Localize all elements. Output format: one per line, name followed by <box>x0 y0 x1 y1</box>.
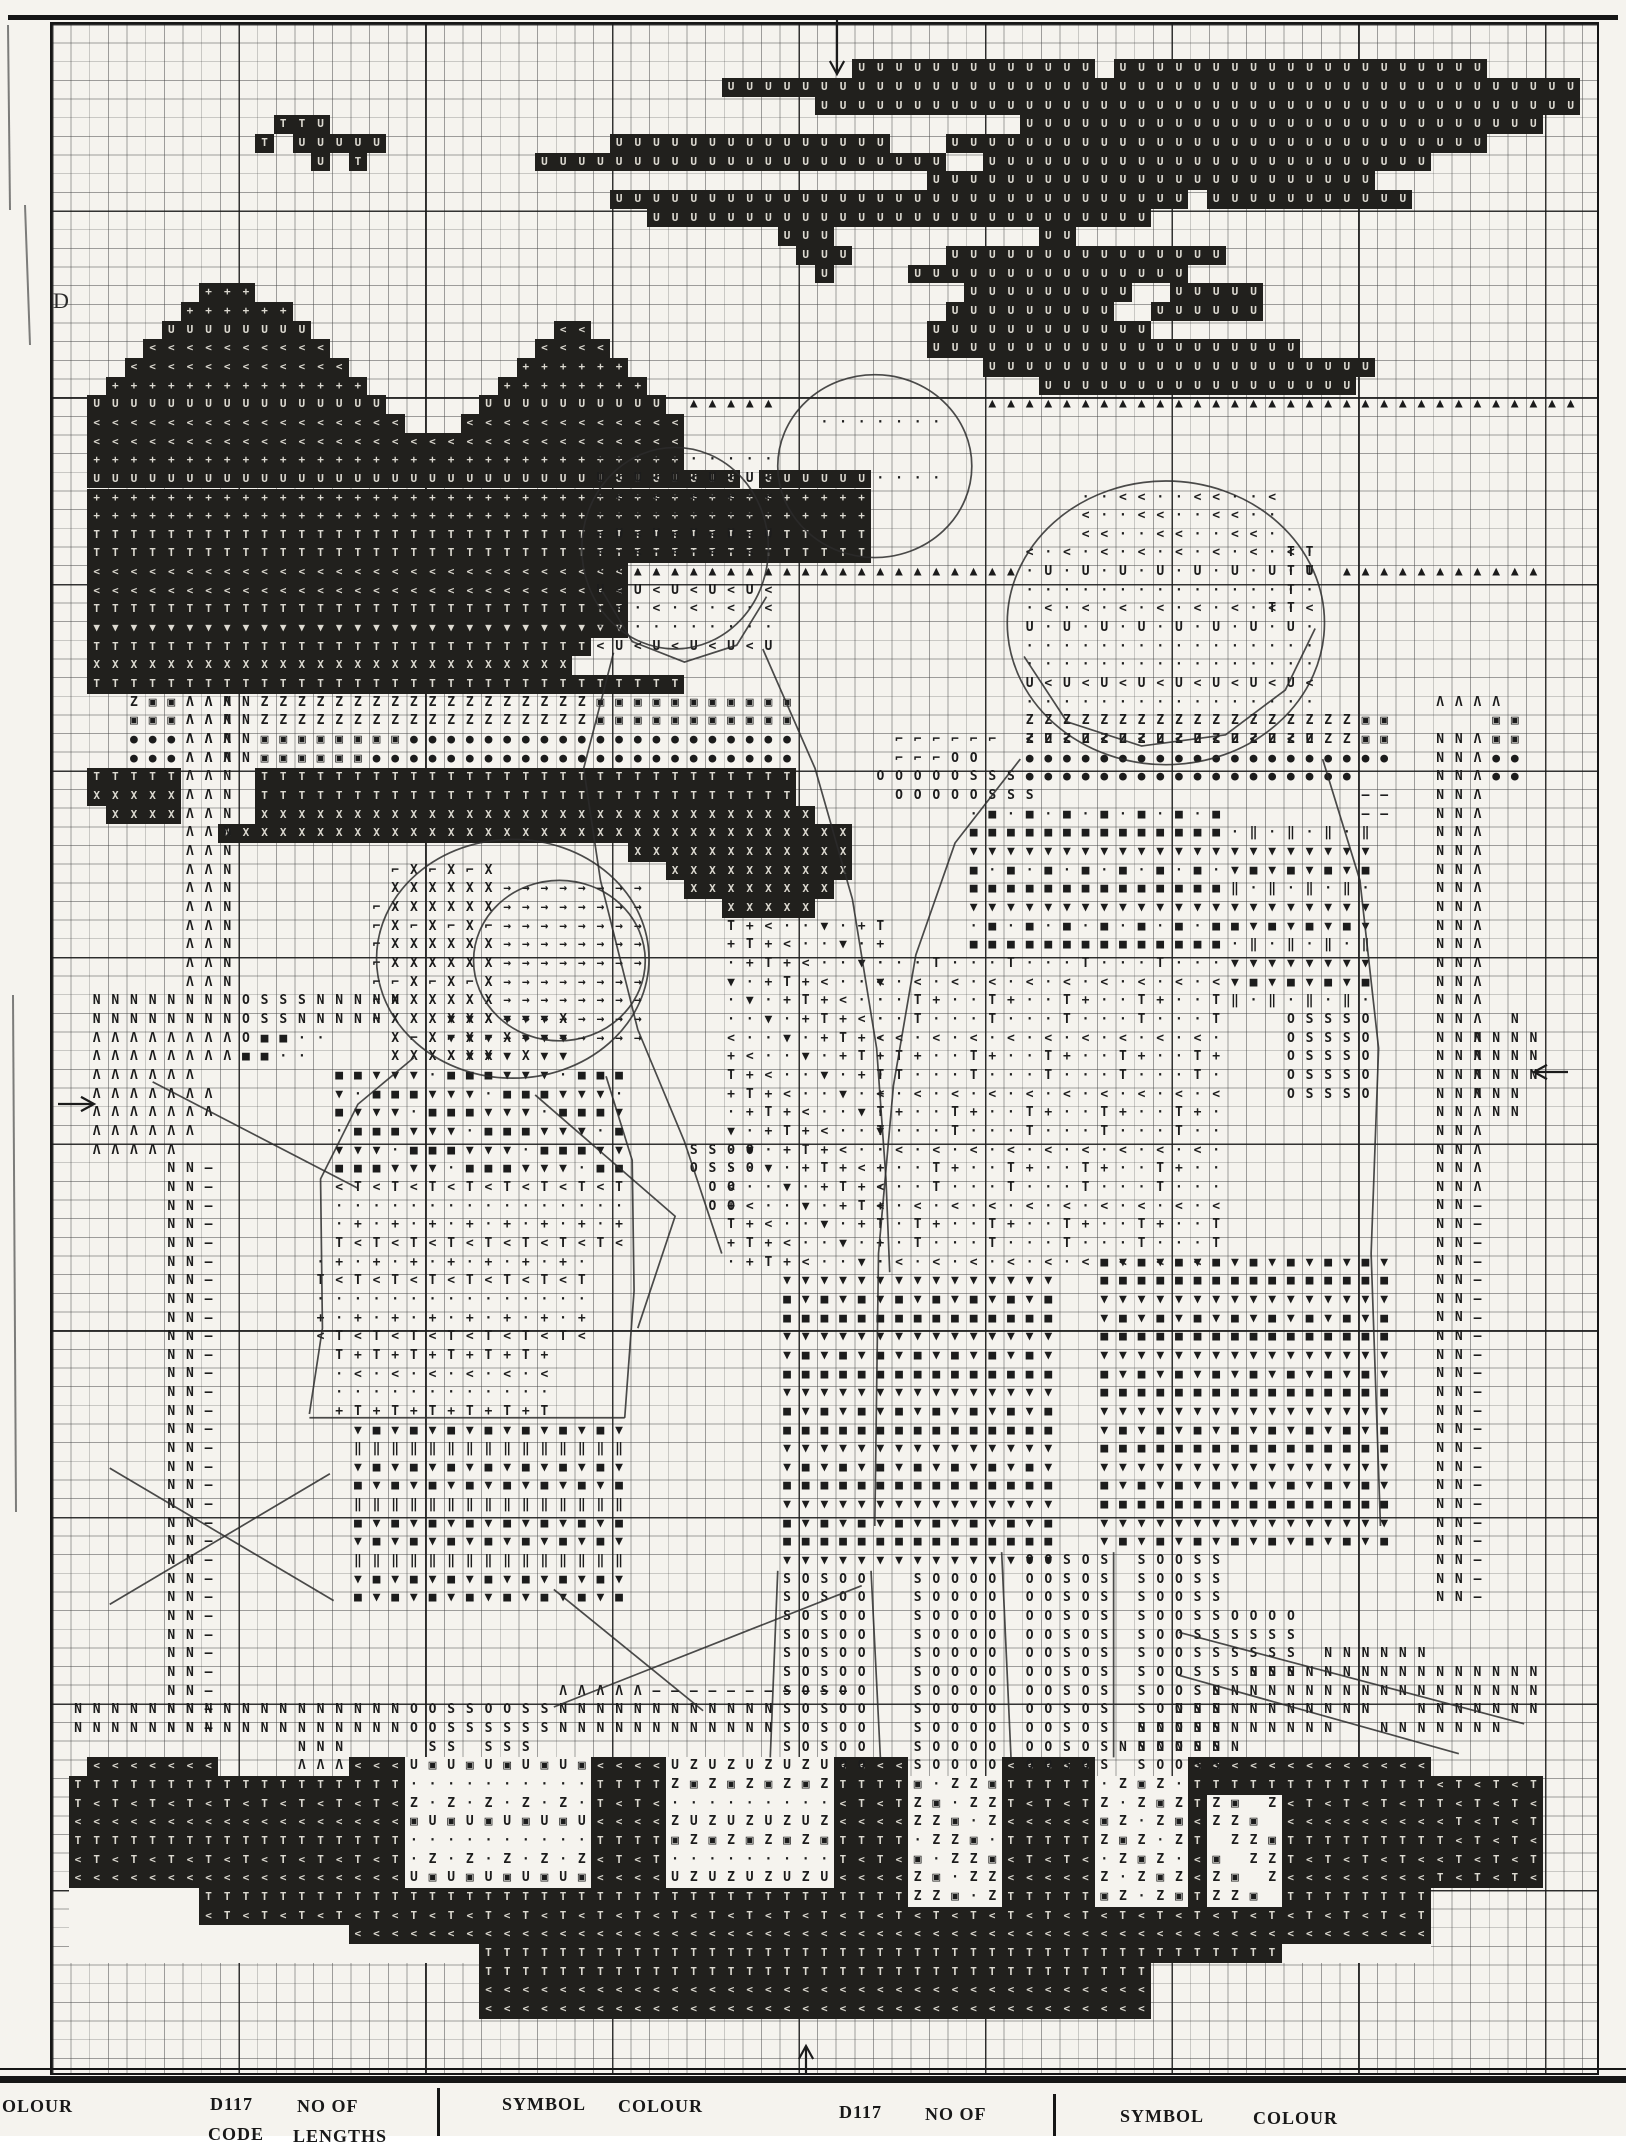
legend-divider-2 <box>1053 2094 1056 2136</box>
legend-lengths-sub: LENGTHS <box>293 2126 387 2147</box>
legend-lengths-head: NO OF <box>297 2096 359 2117</box>
legend-divider-1 <box>437 2088 440 2136</box>
bottom-rule-thin <box>0 2068 1626 2070</box>
scanned-pattern-page: UUUUUUUUUUUUUUUUUUUUUUUUUUUUUUUUUUUUUUUU… <box>0 0 1626 2136</box>
legend-code-sub: CODE <box>208 2124 264 2145</box>
legend-code-head: D117 <box>210 2094 253 2115</box>
legend-colour-2: COLOUR <box>1253 2108 1338 2129</box>
legend-colour-1: COLOUR <box>618 2096 703 2117</box>
legend-code-2: D117 <box>839 2102 882 2123</box>
bottom-rule-thick <box>0 2076 1626 2083</box>
legend-symbol-2: SYMBOL <box>1120 2106 1204 2127</box>
legend-layer: D OLOURD117CODENO OFLENGTHSSYMBOLCOLOURD… <box>0 0 1626 2136</box>
page-top-rule <box>8 15 1618 20</box>
legend-symbol-1: SYMBOL <box>502 2094 586 2115</box>
legend-colour-cut: OLOUR <box>2 2096 73 2117</box>
legend-noof-2: NO OF <box>925 2104 987 2125</box>
margin-letter-d: D <box>53 288 69 314</box>
